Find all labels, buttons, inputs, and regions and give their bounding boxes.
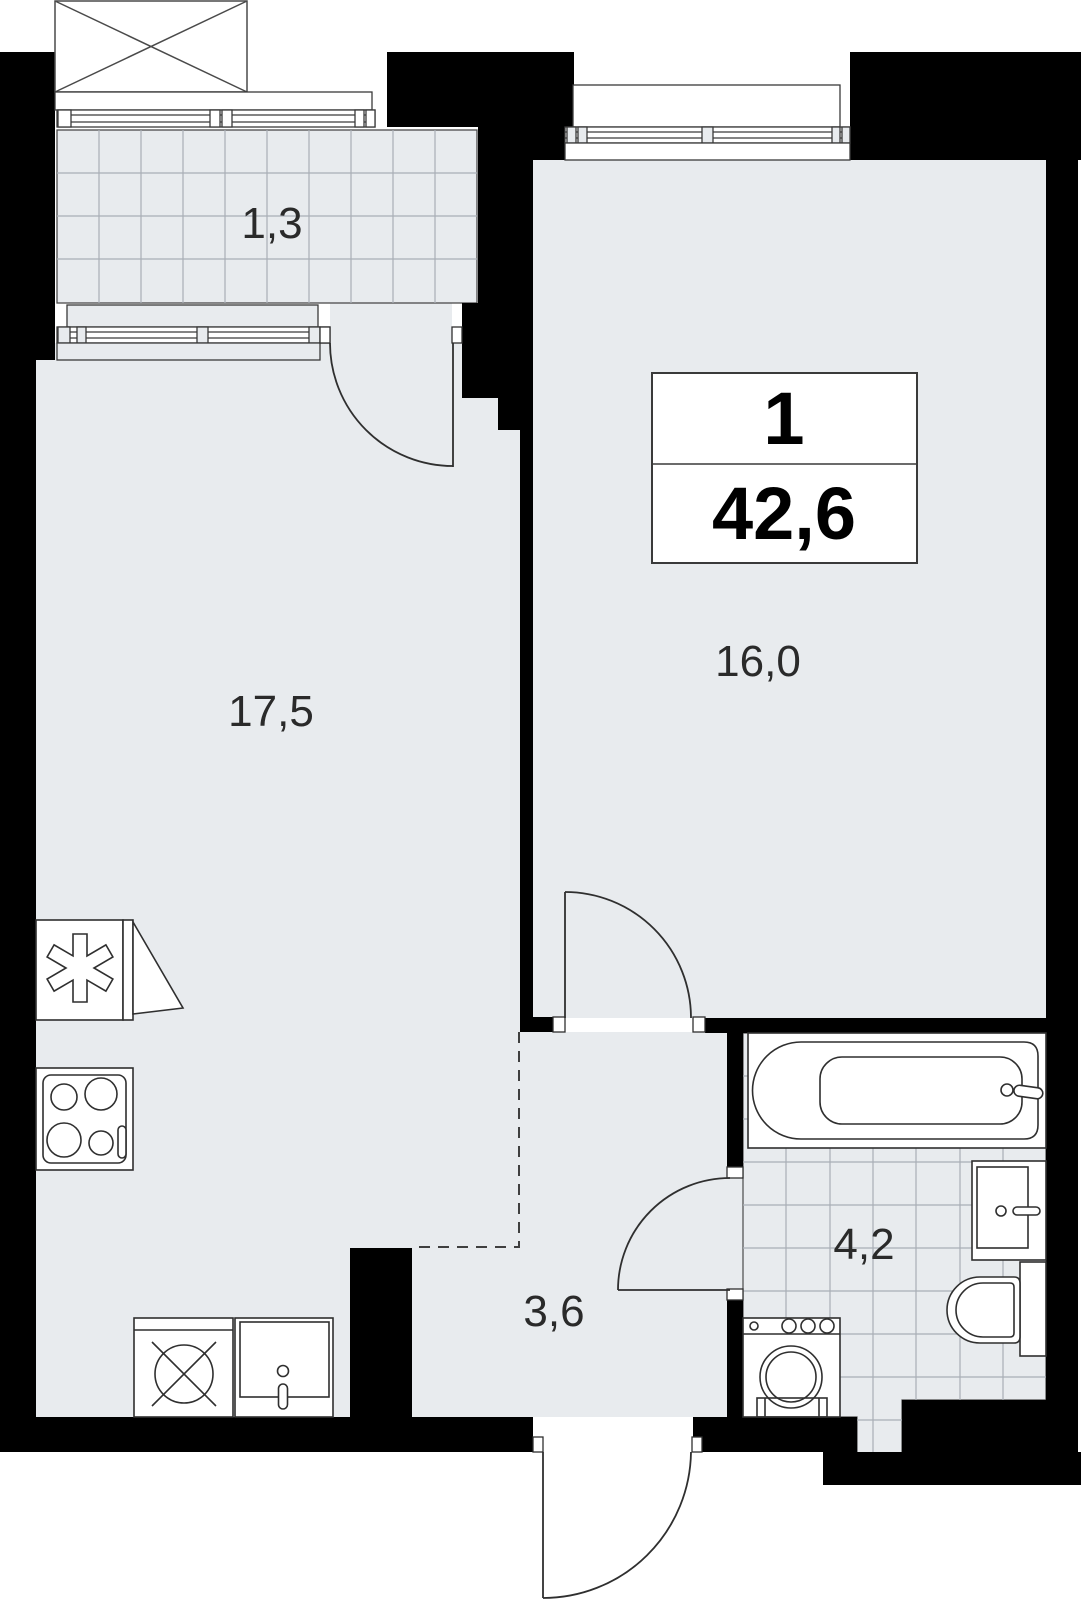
wall-right — [1046, 52, 1078, 1485]
stove-icon — [36, 1068, 133, 1170]
wall-bath-upper — [727, 1033, 743, 1167]
floor-plan-drawing: 1 42,6 1,3 17,5 16,0 3,6 4,2 — [0, 0, 1081, 1600]
balcony-area-label: 1,3 — [241, 199, 302, 248]
bedroom-door-jamb-left — [553, 1017, 565, 1032]
wall-bedroom-door-stub — [520, 1017, 553, 1032]
bath-door-jamb-top — [727, 1167, 743, 1178]
bedroom-door-jamb-right — [693, 1017, 705, 1032]
balcony-door-jamb-left — [320, 327, 330, 343]
wall-hall-block — [350, 1248, 412, 1417]
wall-bottom-left — [0, 1417, 533, 1452]
wall-bottom-center — [693, 1417, 857, 1452]
wall-window-left — [478, 127, 565, 160]
bedroom-area-label: 16,0 — [715, 637, 801, 686]
wall-top-center — [387, 52, 574, 127]
dishwasher-icon — [134, 1318, 233, 1417]
wall-bottom-bath — [902, 1400, 1046, 1452]
wall-bath-lower — [727, 1300, 743, 1417]
shaft-crossed-box-icon — [55, 1, 247, 92]
balcony-railing — [55, 92, 375, 127]
bathroom-area-label: 4,2 — [833, 1220, 894, 1269]
balcony-door-threshold — [330, 303, 452, 345]
bedroom-floor — [533, 160, 1046, 1018]
wall-bedroom-bottom — [705, 1018, 1046, 1033]
washing-machine-icon — [743, 1318, 840, 1417]
kitchen-living-area-label: 17,5 — [228, 687, 314, 736]
wall-kitchen-bedroom — [520, 160, 533, 1032]
washbasin-icon — [972, 1161, 1046, 1260]
info-box: 1 42,6 — [652, 373, 917, 563]
entrance-door-jamb-right — [692, 1437, 702, 1452]
hallway-area-label: 3,6 — [523, 1287, 584, 1336]
kitchen-window — [57, 305, 330, 360]
bathtub-icon — [748, 1033, 1046, 1148]
kitchen-sink-icon — [235, 1318, 333, 1417]
balcony-door-jamb-right — [452, 327, 462, 343]
bedroom-window — [565, 85, 850, 160]
entrance-door-swing — [543, 1452, 691, 1598]
floor-plan: 1 42,6 1,3 17,5 16,0 3,6 4,2 — [0, 0, 1081, 1600]
info-total-area: 42,6 — [712, 472, 856, 555]
entrance-door-jamb-left — [533, 1437, 543, 1452]
hallway-floor — [412, 1032, 743, 1417]
wall-bottom-step — [823, 1452, 1081, 1485]
info-rooms-count: 1 — [763, 377, 804, 460]
